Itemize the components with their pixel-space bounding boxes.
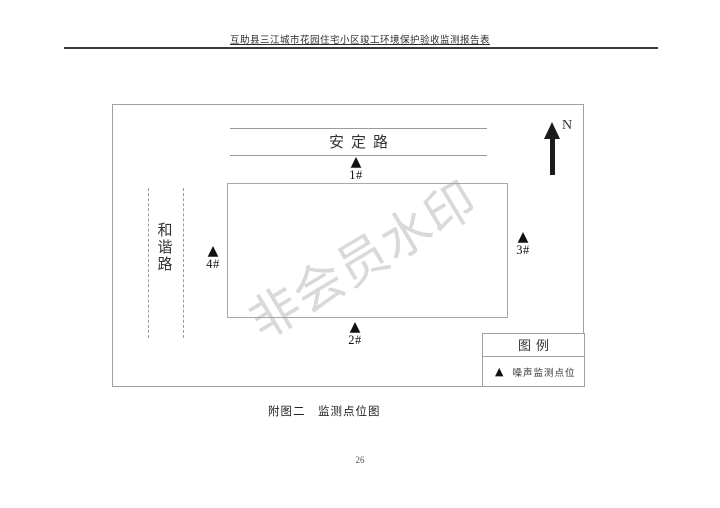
figure-caption: 附图二 监测点位图 <box>268 403 381 419</box>
north-arrow-head-icon <box>544 122 560 139</box>
monitoring-point-label: 2# <box>338 333 372 347</box>
legend-title: 图例 <box>483 334 584 357</box>
north-arrow: N <box>535 118 575 180</box>
left-road-inner-edge <box>183 188 184 338</box>
left-road-char: 谐 <box>157 240 173 257</box>
legend-item: ▲ 噪声监测点位 <box>483 357 584 386</box>
noise-point-icon: ▲ <box>506 231 540 243</box>
north-arrow-shaft <box>550 138 555 175</box>
figure-drawing-layer: 安定路 N 和 谐 路 ▲ 1# <box>113 105 583 386</box>
legend-box: 图例 ▲ 噪声监测点位 <box>482 333 585 387</box>
monitoring-point-3: ▲ 3# <box>506 231 540 257</box>
monitoring-point-2: ▲ 2# <box>338 321 372 347</box>
site-map-figure: 非会员水印 安定路 N 和 谐 路 ▲ <box>112 104 584 387</box>
noise-point-icon: ▲ <box>339 156 373 168</box>
noise-point-icon: ▲ <box>495 366 503 377</box>
header-divider <box>64 47 658 49</box>
left-road-char: 路 <box>157 257 173 274</box>
building-site-outline <box>227 183 508 318</box>
monitoring-point-1: ▲ 1# <box>339 156 373 182</box>
monitoring-point-label: 1# <box>339 168 373 182</box>
top-road-label: 安定路 <box>230 131 487 152</box>
noise-point-icon: ▲ <box>338 321 372 333</box>
north-label: N <box>562 118 572 134</box>
monitoring-point-label: 3# <box>506 243 540 257</box>
monitoring-point-label: 4# <box>196 257 230 271</box>
page-number: 26 <box>0 455 720 465</box>
top-road-upper-edge <box>230 128 487 129</box>
legend-item-label: 噪声监测点位 <box>512 365 575 379</box>
noise-point-icon: ▲ <box>196 245 230 257</box>
left-road-outer-edge <box>148 188 149 338</box>
left-road-char: 和 <box>157 223 173 240</box>
monitoring-point-4: ▲ 4# <box>196 245 230 271</box>
document-page: 互助县三江城市花园住宅小区竣工环境保护验收监测报告表 非会员水印 安定路 N 和… <box>0 0 720 508</box>
report-header-title: 互助县三江城市花园住宅小区竣工环境保护验收监测报告表 <box>0 32 720 46</box>
left-road-label: 和 谐 路 <box>157 223 173 274</box>
